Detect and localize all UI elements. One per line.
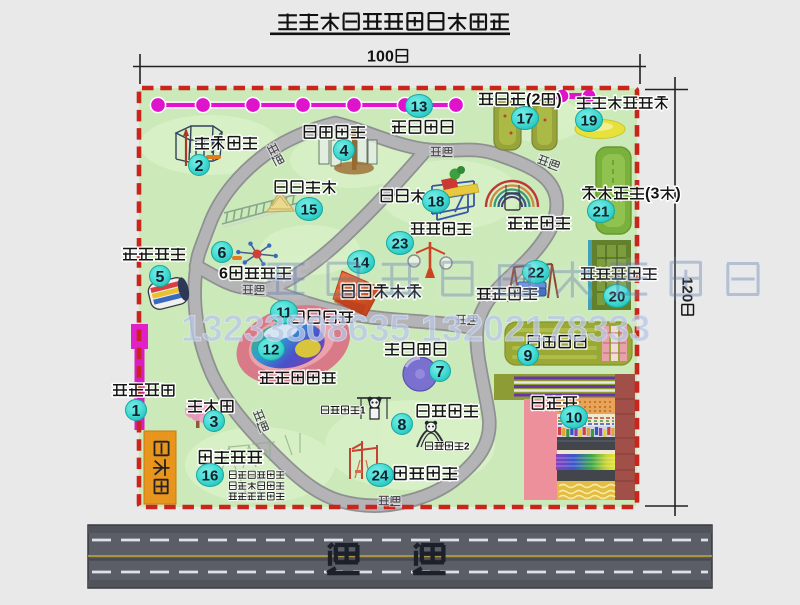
svg-text:0: 0 [385, 48, 394, 65]
svg-text:1: 1 [132, 403, 141, 420]
svg-text:): ) [556, 91, 561, 108]
svg-text:6: 6 [218, 245, 227, 262]
svg-text:13233808635 13202178333: 13233808635 13202178333 [181, 307, 650, 349]
svg-text:9: 9 [524, 348, 533, 365]
svg-text:21: 21 [593, 203, 610, 220]
svg-text:0: 0 [376, 48, 385, 65]
svg-text:3: 3 [650, 185, 659, 202]
svg-text:1: 1 [367, 48, 376, 65]
svg-text:6: 6 [219, 265, 228, 282]
svg-text:4: 4 [340, 143, 349, 160]
svg-text:2: 2 [195, 158, 204, 175]
svg-text:10: 10 [566, 409, 583, 426]
svg-text:16: 16 [202, 467, 219, 484]
svg-text:2: 2 [531, 91, 540, 108]
svg-text:7: 7 [436, 364, 445, 381]
svg-text:23: 23 [392, 235, 409, 252]
svg-text:): ) [675, 185, 680, 202]
svg-text:17: 17 [517, 110, 534, 127]
svg-text:3: 3 [210, 414, 219, 431]
svg-text:13: 13 [411, 98, 428, 115]
svg-text:1: 1 [360, 405, 366, 416]
svg-text:24: 24 [372, 467, 389, 484]
svg-text:2: 2 [464, 441, 470, 452]
svg-text:18: 18 [428, 193, 445, 210]
svg-text:5: 5 [156, 269, 165, 286]
svg-text:15: 15 [301, 201, 318, 218]
svg-text:8: 8 [398, 417, 407, 434]
svg-text:19: 19 [581, 112, 598, 129]
